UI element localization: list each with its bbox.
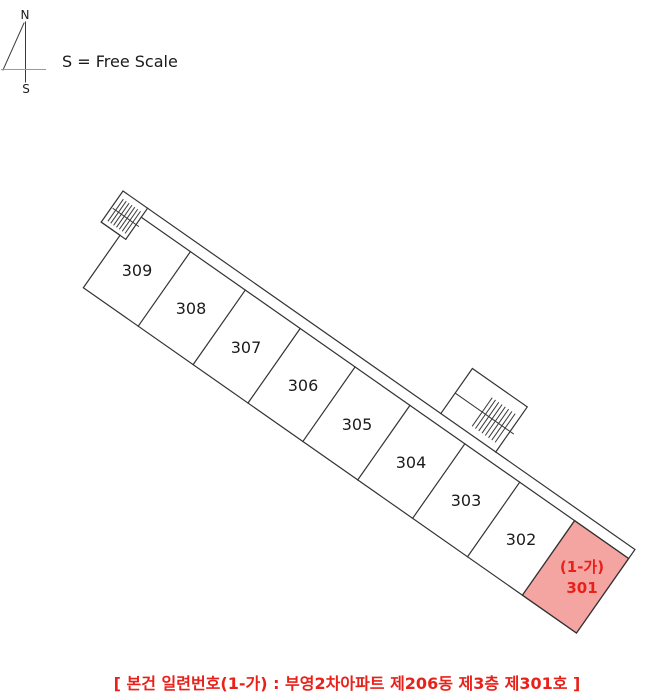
stairwell-left-icon bbox=[101, 191, 150, 241]
floor-plan-page: N S S = Free Scale bbox=[0, 0, 646, 700]
stair-spine bbox=[455, 393, 513, 434]
stair-spine bbox=[113, 209, 138, 227]
unit-label-303: 303 bbox=[451, 491, 482, 510]
compass-arrow-edge-icon bbox=[3, 23, 24, 70]
unit-label-302: 302 bbox=[506, 530, 537, 549]
unit-301-highlight bbox=[522, 521, 628, 633]
compass-south-label: S bbox=[22, 82, 30, 96]
unit-label-301: 301 bbox=[566, 579, 597, 597]
unit-label-305: 305 bbox=[342, 415, 373, 434]
scale-note: S = Free Scale bbox=[62, 52, 178, 71]
unit-301-tag-label: (1-가) bbox=[560, 558, 604, 576]
compass: N S S = Free Scale bbox=[1, 8, 178, 96]
unit-label-308: 308 bbox=[176, 299, 207, 318]
caption: [ 본건 일련번호(1-가) : 부영2차아파트 제206동 제3층 제301호… bbox=[114, 674, 581, 693]
floor-plan-canvas: N S S = Free Scale bbox=[0, 0, 646, 700]
building-plan bbox=[64, 146, 646, 633]
corridor-inner-wall bbox=[141, 217, 628, 558]
unit-label-309: 309 bbox=[122, 261, 153, 280]
unit-label-306: 306 bbox=[288, 376, 319, 395]
stairwell-center-icon bbox=[441, 368, 531, 454]
unit-label-307: 307 bbox=[231, 338, 262, 357]
unit-label-304: 304 bbox=[396, 453, 427, 472]
unit-labels: 309 308 307 306 305 304 303 302 (1-가) 30… bbox=[122, 261, 604, 597]
compass-north-label: N bbox=[21, 8, 30, 22]
